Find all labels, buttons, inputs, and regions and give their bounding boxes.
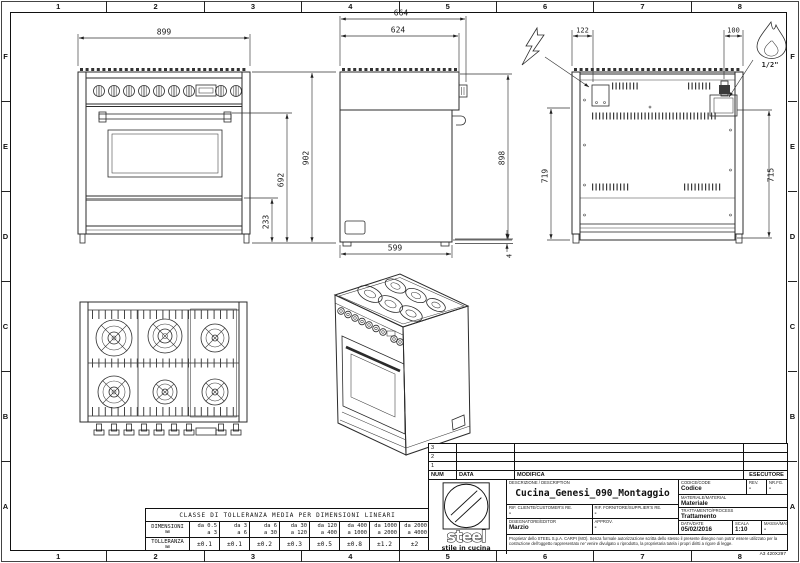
tolerance-range: da 30a 120 xyxy=(280,522,310,537)
tolerance-value: ±0.2 xyxy=(250,538,280,551)
oven-handle xyxy=(99,112,231,122)
tolerance-value: ±0.1 xyxy=(220,538,250,551)
gas-flame-icon xyxy=(757,22,786,58)
burner xyxy=(202,379,228,405)
revision-row: 3 xyxy=(429,444,787,453)
dim-rear-height-right: 715 xyxy=(767,168,776,183)
tolerance-tol-label: TOLLERANZA mm xyxy=(146,538,190,551)
dim-front-width: 899 xyxy=(157,28,172,37)
trattamento-cell: TRATTAMENTO/PROCESS Trattamento xyxy=(679,508,787,520)
tolerance-value: ±0.3 xyxy=(280,538,310,551)
side-hook xyxy=(452,116,466,125)
rating-plate xyxy=(345,221,365,234)
materiale-cell: MATERIALE/MATERIAL Materiale xyxy=(679,495,787,507)
tolerance-range: da 3a 6 xyxy=(220,522,250,537)
legal-notice: Proprieta' dello STEEL S.p.A. CARPI (MO)… xyxy=(507,534,787,554)
tolerance-table: CLASSE DI TOLLERANZA MEDIA PER DIMENSION… xyxy=(145,508,430,551)
burner xyxy=(153,380,177,404)
burner xyxy=(98,376,130,408)
tolerance-table-title: CLASSE DI TOLLERANZA MEDIA PER DIMENSION… xyxy=(146,509,429,522)
tolerance-value: ±1.2 xyxy=(370,538,400,551)
gas-fitting-label: 1/2" xyxy=(762,61,779,69)
tolerance-range: da 120a 400 xyxy=(310,522,340,537)
revision-row: 1 xyxy=(429,462,787,471)
dim-front-oven-height: 692 xyxy=(277,173,286,188)
description-cell: DESCRIZIONE / DESCRIPTION Cucina_Genesi_… xyxy=(507,480,678,505)
burner xyxy=(148,319,182,353)
burner xyxy=(96,320,132,356)
drawing-title: Cucina_Genesi_090_Montaggio xyxy=(507,488,678,499)
iso-rating-plate xyxy=(452,415,465,430)
top-view xyxy=(80,302,247,435)
disegnatore-cell: DISEGNATORE/EDITOR Marzio xyxy=(507,519,593,534)
drawing-sheet: 1 2 3 4 5 6 7 8 1 2 3 4 5 6 7 8 F E D C … xyxy=(0,0,800,563)
rev-cell: REV. - xyxy=(747,480,767,494)
electrical-bolt-icon xyxy=(522,28,544,65)
isometric-view xyxy=(335,274,470,455)
approv-cell: APPROV. - xyxy=(593,519,679,534)
tolerance-range: da 400a 1000 xyxy=(340,522,370,537)
tolerance-range: da 0.5a 3 xyxy=(190,522,220,537)
dim-side-depth-total: 664 xyxy=(394,9,409,18)
electrical-terminal-box xyxy=(592,85,609,106)
gas-inlet xyxy=(710,81,737,116)
tolerance-value: ±0.5 xyxy=(310,538,340,551)
oven-door xyxy=(86,107,242,197)
dim-rear-height-left: 719 xyxy=(541,169,550,184)
steel-logo: steel stile in cucina xyxy=(429,480,507,554)
tolerance-range: da 2000a 4000 xyxy=(400,522,429,537)
front-view: 899 902 692 233 xyxy=(78,28,336,244)
massa-cell: MASSA/MASS kg - xyxy=(762,521,787,534)
data-cell: DATA/DATE 05/02/2016 xyxy=(679,521,733,534)
dim-rear-electrical-offset: 122 xyxy=(576,27,589,35)
burner xyxy=(201,324,229,352)
logo-tagline: stile in cucina xyxy=(441,545,490,552)
dim-side-depth-top: 624 xyxy=(391,26,406,35)
title-block: 3 2 1 NUM DATA MODIFICA ESECUTORE steel … xyxy=(428,443,788,551)
revision-row: 2 xyxy=(429,453,787,462)
dim-side-depth-base: 599 xyxy=(388,244,403,253)
tolerance-value: ±2 xyxy=(400,538,429,551)
rif-cliente-cell: RIF. CLIENTE/CUSTOMER'S RE. - xyxy=(507,505,593,518)
dim-side-foot: 4 xyxy=(506,254,514,258)
dim-front-plinth: 233 xyxy=(262,215,271,230)
tolerance-range: da 1000a 2000 xyxy=(370,522,400,537)
dim-rear-gas-offset: 100 xyxy=(727,27,740,35)
rear-view: 122 100 719 715 1/2" xyxy=(522,22,786,243)
side-knob xyxy=(459,85,467,97)
dim-side-height-body: 898 xyxy=(498,151,507,166)
revision-header: NUM DATA MODIFICA ESECUTORE xyxy=(429,471,787,480)
side-view: 664 624 898 599 4 xyxy=(340,9,514,259)
codice-cell: CODICE/CODE Codice xyxy=(679,480,747,494)
tolerance-dim-label: DIMENSIONI mm xyxy=(146,522,190,537)
rif-fornitore-cell: RIF. FORNITORE/SUPPLIER'S RE. - xyxy=(593,505,679,518)
logo-wordmark: steel xyxy=(446,527,485,546)
tolerance-range: da 6a 30 xyxy=(250,522,280,537)
tolerance-value: ±0.1 xyxy=(190,538,220,551)
storage-drawer xyxy=(86,200,242,226)
tolerance-value: ±0.8 xyxy=(340,538,370,551)
dim-front-height: 902 xyxy=(302,151,311,166)
nrfg-cell: NR.FG. - xyxy=(767,480,787,494)
scala-cell: SCALA 1:10 xyxy=(733,521,762,534)
